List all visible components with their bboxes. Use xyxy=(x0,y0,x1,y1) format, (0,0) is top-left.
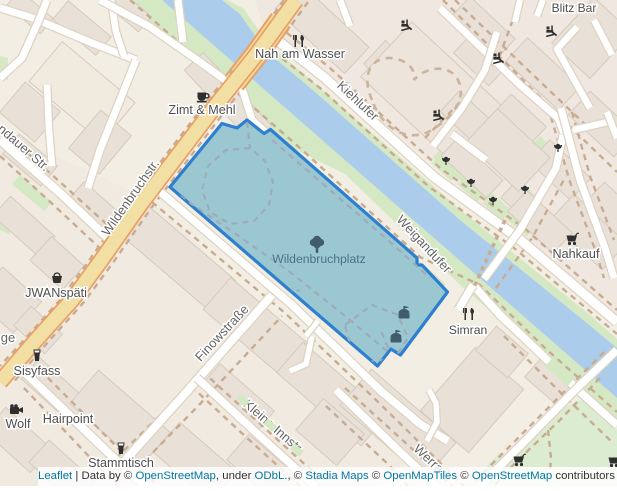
svg-text:JWANspäti: JWANspäti xyxy=(25,286,87,300)
svg-text:Simran: Simran xyxy=(449,323,488,337)
svg-text:Sisyfass: Sisyfass xyxy=(14,364,61,378)
svg-text:Zimt & Mehl: Zimt & Mehl xyxy=(168,103,235,117)
svg-text:Wildenbruchplatz: Wildenbruchplatz xyxy=(272,252,365,266)
svg-text:Nahkauf: Nahkauf xyxy=(553,247,600,261)
svg-text:ge: ge xyxy=(1,330,15,345)
svg-text:Nah am Wasser: Nah am Wasser xyxy=(255,47,345,61)
svg-text:Wolf: Wolf xyxy=(6,417,31,431)
svg-text:Hairpoint: Hairpoint xyxy=(43,412,94,426)
svg-text:Blitz Bar: Blitz Bar xyxy=(552,1,597,15)
